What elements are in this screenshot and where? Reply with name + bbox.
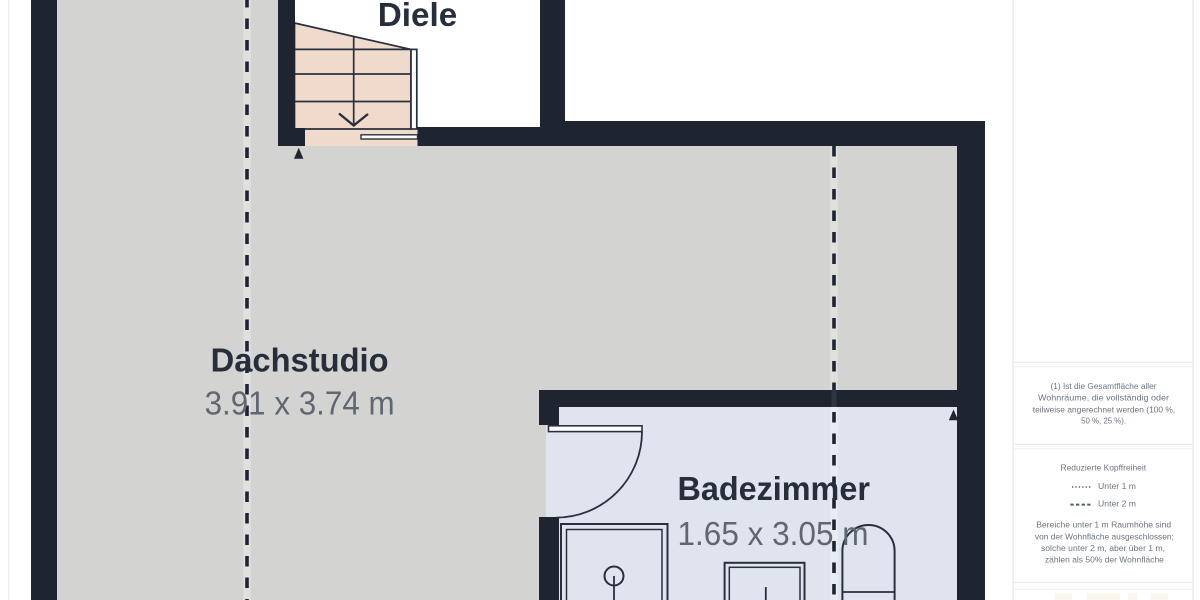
svg-text:3.91 x 3.74 m: 3.91 x 3.74 m	[205, 385, 395, 422]
svg-text:Wohnräume, die vollständig ode: Wohnräume, die vollständig oder	[1038, 393, 1169, 403]
svg-text:Diele: Diele	[378, 0, 458, 34]
svg-text:1.65 x 3.05 m: 1.65 x 3.05 m	[678, 516, 869, 553]
svg-text:Dachstudio: Dachstudio	[211, 343, 389, 380]
svg-text:Reduzierte Kopffreiheit: Reduzierte Kopffreiheit	[1061, 463, 1147, 473]
svg-text:teilweise angerechnet werden (: teilweise angerechnet werden (100 %,	[1033, 404, 1176, 414]
svg-text:Unter 1 m: Unter 1 m	[1098, 481, 1136, 491]
svg-text:(1) Ist die Gesamtfläche aller: (1) Ist die Gesamtfläche aller	[1051, 381, 1157, 391]
svg-text:50 %, 25 %).: 50 %, 25 %).	[1081, 415, 1126, 425]
svg-text:solche unter 2 m, aber über 1: solche unter 2 m, aber über 1 m,	[1041, 543, 1165, 553]
svg-text:Bereiche unter 1 m Raumhöhe si: Bereiche unter 1 m Raumhöhe sind	[1036, 520, 1171, 530]
svg-text:Unter 2 m: Unter 2 m	[1098, 499, 1136, 509]
svg-text:Badezimmer: Badezimmer	[677, 471, 870, 508]
svg-text:von der Wohnfläche ausgeschlos: von der Wohnfläche ausgeschlossen;	[1035, 531, 1174, 541]
svg-text:zählen als 50% der Wohnfläche: zählen als 50% der Wohnfläche	[1045, 554, 1164, 564]
